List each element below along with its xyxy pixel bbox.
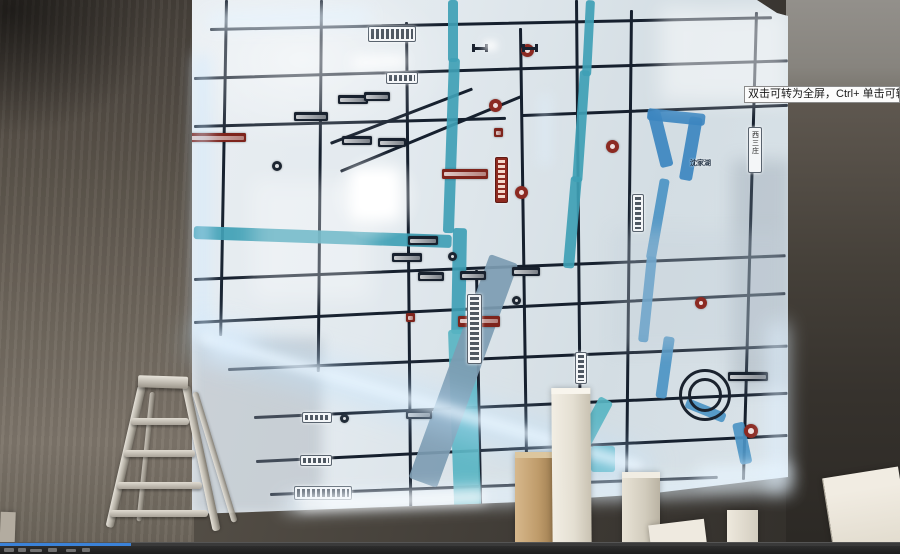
box-top-face xyxy=(515,452,553,458)
poi-logo xyxy=(340,414,349,423)
poi-logo xyxy=(448,252,457,261)
poi-logo xyxy=(515,186,528,199)
ladder-rung xyxy=(124,450,195,457)
poi-logo xyxy=(272,161,282,171)
chip-text-smudge xyxy=(344,139,370,143)
map-shading xyxy=(612,230,787,350)
player-seekbar[interactable] xyxy=(0,542,900,554)
poi-chip xyxy=(460,271,486,280)
poi-chip xyxy=(364,92,390,101)
ladder-rung xyxy=(117,482,202,489)
chip-text-smudge xyxy=(190,136,244,140)
road-plaque xyxy=(575,352,587,384)
plaque-text-smudge xyxy=(297,489,349,497)
poi-chip xyxy=(728,372,768,381)
player-control-icon[interactable] xyxy=(30,549,42,552)
chip-text-smudge xyxy=(408,316,413,320)
ladder-rung xyxy=(110,510,208,517)
poi-chip xyxy=(406,313,415,322)
road-plaque xyxy=(294,486,352,500)
player-control-icon[interactable] xyxy=(82,548,90,552)
road-plaque xyxy=(495,157,508,203)
plaque-text-smudge xyxy=(578,355,584,381)
chip-text-smudge xyxy=(296,115,326,119)
fullscreen-tooltip: 双击可转为全屏，Ctrl+ 单击可转为 xyxy=(744,86,900,103)
road-plaque xyxy=(368,26,416,42)
chip-text-smudge xyxy=(730,375,766,379)
bridge-icon xyxy=(522,44,538,52)
ladder-top-cap xyxy=(138,375,188,389)
chip-text-smudge xyxy=(420,275,442,279)
map-shading xyxy=(252,180,372,300)
poi-logo xyxy=(489,99,502,112)
road-plaque xyxy=(632,194,644,232)
chip-text-smudge xyxy=(380,141,404,145)
progress-track[interactable] xyxy=(0,543,900,546)
foreground-slab-bottom-right xyxy=(822,466,900,554)
plaque-text-smudge xyxy=(389,75,415,81)
chip-text-smudge xyxy=(444,172,486,176)
foreground-pillar-tall xyxy=(551,388,591,548)
poi-chip xyxy=(442,169,488,179)
road-plaque: 西三庄 xyxy=(748,127,762,173)
chip-text-smudge xyxy=(514,270,538,274)
road-plaque-label: 西三庄 xyxy=(752,131,759,155)
wall-left xyxy=(0,0,194,554)
chip-text-smudge xyxy=(410,239,436,243)
player-control-icon[interactable] xyxy=(66,549,76,552)
road-plaque xyxy=(386,72,418,84)
box-top-face xyxy=(551,388,590,394)
road-plaque xyxy=(302,412,332,423)
plaque-text-smudge xyxy=(371,29,413,39)
plaque-text-smudge xyxy=(635,197,641,229)
river-segment xyxy=(591,446,615,472)
poi-chip xyxy=(378,138,406,147)
poi-chip xyxy=(418,272,444,281)
chip-text-smudge xyxy=(394,256,420,260)
map-artwork: 西三庄沈家湖 xyxy=(192,0,792,516)
player-control-icon[interactable] xyxy=(48,548,57,552)
plaque-text-smudge xyxy=(470,297,479,361)
road-plaque xyxy=(300,455,332,466)
poi-chip xyxy=(406,410,432,419)
poi-logo xyxy=(606,140,619,153)
video-surface[interactable]: 西三庄沈家湖 双击可转为全屏，Ctrl+ 单击可转为 xyxy=(0,0,900,554)
poi-chip xyxy=(494,128,503,137)
poi-chip xyxy=(294,112,328,121)
poi-logo xyxy=(512,296,521,305)
box-top-face xyxy=(622,472,660,478)
poi-chip xyxy=(188,133,246,142)
plaque-text-smudge xyxy=(498,160,505,200)
interchange-ring xyxy=(688,378,722,412)
poi-chip xyxy=(392,253,422,262)
chip-text-smudge xyxy=(366,95,388,99)
poi-logo xyxy=(695,297,707,309)
player-control-icon[interactable] xyxy=(18,548,26,552)
illuminated-map-panel: 西三庄沈家湖 xyxy=(192,0,792,516)
ladder-rung xyxy=(131,418,189,425)
map-label: 沈家湖 xyxy=(690,158,711,168)
poi-logo xyxy=(744,424,758,438)
foreground-box-tan xyxy=(515,452,553,548)
road-plaque xyxy=(467,294,482,364)
poi-chip xyxy=(512,267,540,276)
chip-text-smudge xyxy=(408,413,430,417)
chip-text-smudge xyxy=(340,98,366,102)
chip-text-smudge xyxy=(496,131,501,135)
poi-chip xyxy=(408,236,438,245)
bridge-icon xyxy=(472,44,488,52)
plaque-text-smudge xyxy=(303,458,329,463)
player-control-icon[interactable] xyxy=(4,548,14,552)
poi-chip xyxy=(342,136,372,145)
chip-text-smudge xyxy=(462,274,484,278)
river-segment xyxy=(679,116,703,181)
plaque-text-smudge xyxy=(305,415,329,420)
progress-fill xyxy=(0,543,131,546)
